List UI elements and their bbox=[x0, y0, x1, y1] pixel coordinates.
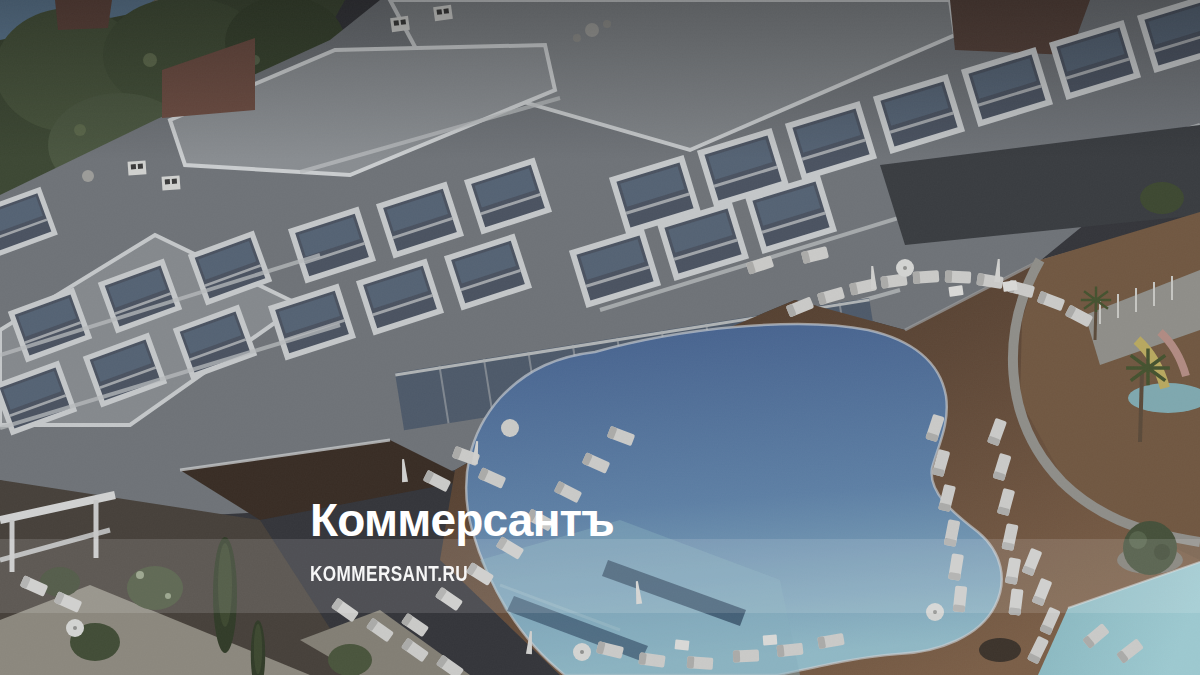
news-photo-card: Коммерсантъ KOMMERSANT.RU bbox=[0, 0, 1200, 675]
kommersant-site-url: KOMMERSANT.RU bbox=[310, 562, 553, 587]
kommersant-logo: Коммерсантъ bbox=[310, 497, 614, 543]
kommersant-watermark: Коммерсантъ KOMMERSANT.RU bbox=[310, 497, 614, 587]
